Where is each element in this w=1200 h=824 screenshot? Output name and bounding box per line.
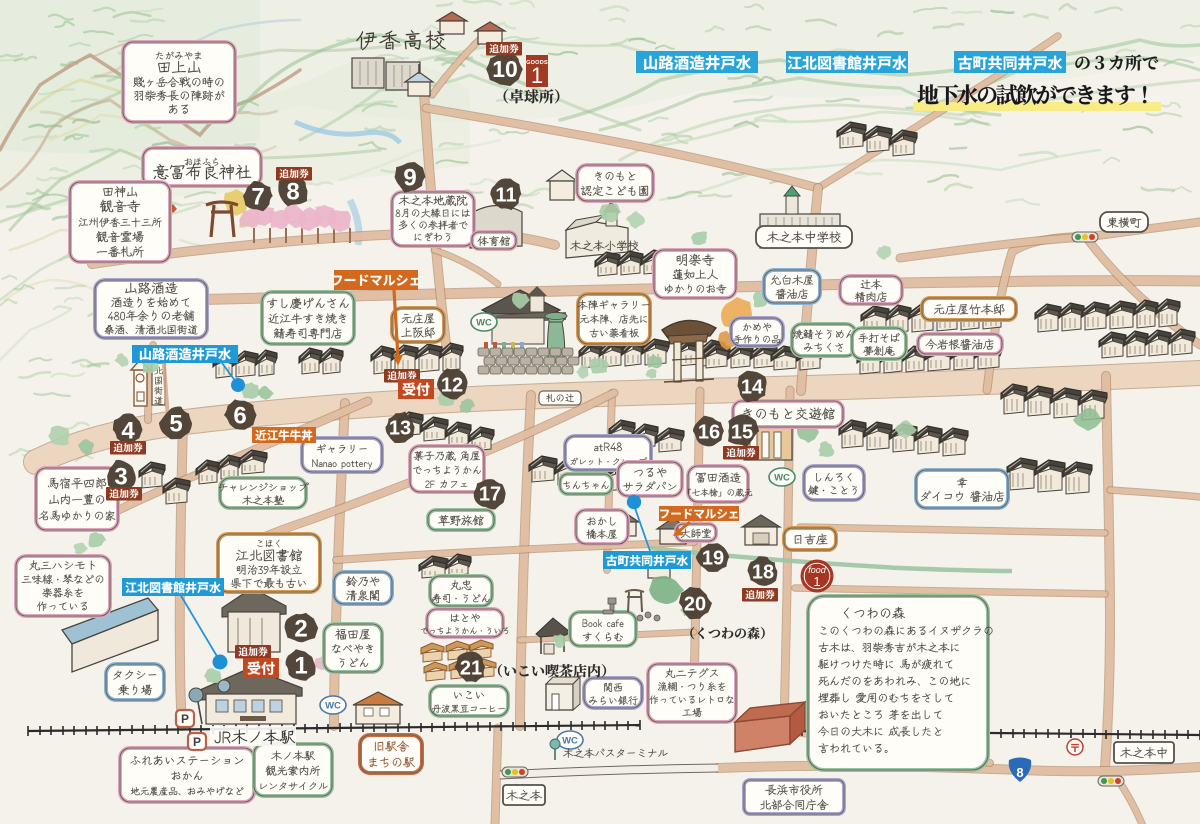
svg-text:WC: WC [476, 318, 492, 329]
svg-text:8: 8 [1016, 765, 1023, 780]
svg-text:WC: WC [325, 701, 341, 712]
svg-text:14: 14 [741, 376, 764, 398]
svg-text:10: 10 [492, 56, 518, 82]
svg-text:2: 2 [294, 615, 307, 642]
svg-text:4: 4 [121, 417, 135, 444]
svg-text:19: 19 [702, 547, 724, 569]
svg-text:7: 7 [251, 183, 264, 210]
svg-text:WC: WC [562, 736, 578, 747]
svg-text:WC: WC [774, 473, 790, 484]
svg-text:20: 20 [684, 593, 706, 615]
svg-text:1: 1 [294, 652, 307, 679]
svg-text:15: 15 [731, 421, 753, 443]
svg-text:5: 5 [169, 410, 182, 437]
svg-text:1: 1 [531, 63, 543, 88]
svg-text:12: 12 [441, 374, 463, 396]
svg-text:21: 21 [460, 657, 482, 679]
svg-text:6: 6 [233, 402, 246, 429]
svg-text:P: P [181, 712, 189, 726]
svg-text:P: P [193, 735, 201, 749]
svg-text:17: 17 [479, 483, 501, 505]
svg-text:3: 3 [114, 463, 127, 490]
svg-text:11: 11 [495, 184, 516, 206]
svg-text:13: 13 [389, 417, 411, 439]
svg-text:8: 8 [286, 178, 299, 205]
svg-text:16: 16 [698, 421, 720, 443]
svg-text:9: 9 [403, 164, 416, 191]
svg-text:1: 1 [813, 574, 820, 589]
svg-text:18: 18 [752, 561, 774, 583]
